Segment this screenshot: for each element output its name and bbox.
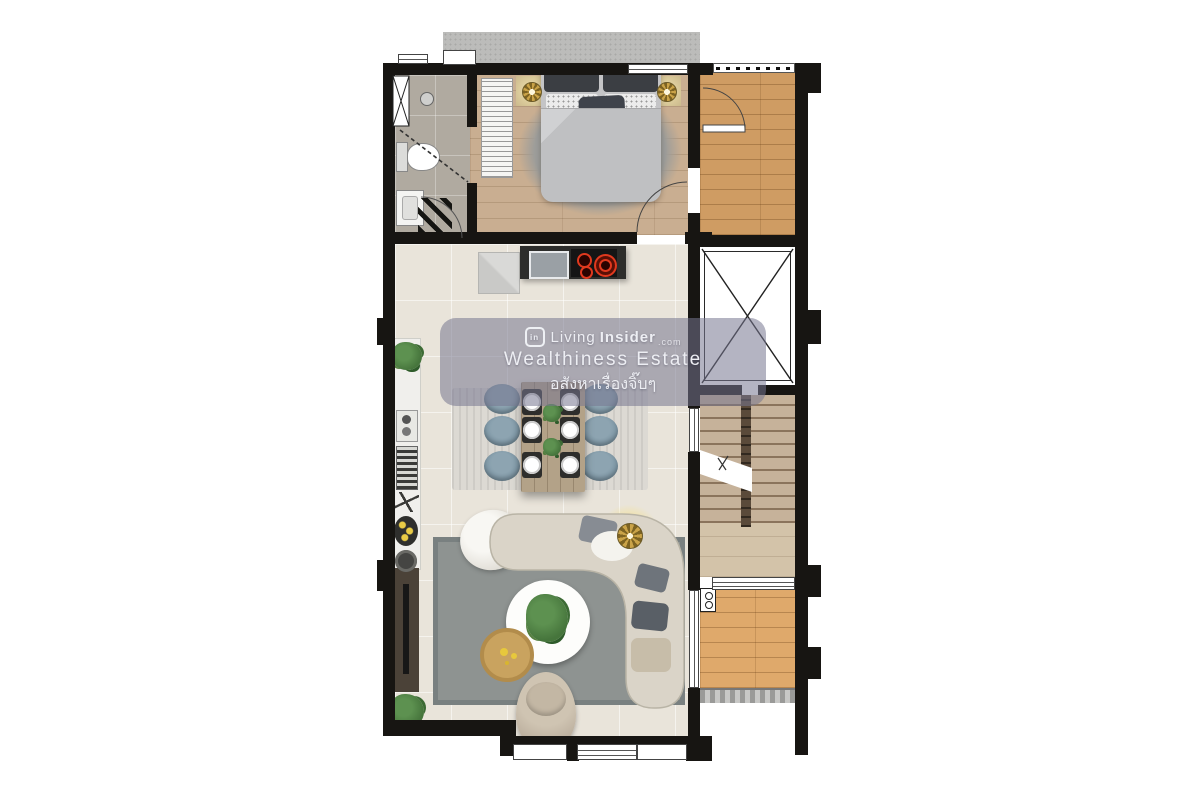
bedside-lamp-right: [657, 82, 677, 102]
table-plant: [543, 404, 561, 422]
watermark-title: Wealthiness Estate: [504, 349, 702, 371]
wall-mid-vertical-3: [688, 558, 700, 590]
bed-duvet: [541, 108, 661, 202]
plate: [523, 456, 541, 474]
coffee-table-plant: [526, 594, 568, 642]
stair-side-window: [689, 408, 699, 452]
window-line: [629, 69, 687, 70]
watermark-subtitle-thai: อสังหาเรื่องจิ๊บๆ: [550, 372, 656, 397]
window-line: [578, 755, 636, 756]
living-deck-window: [689, 590, 699, 688]
stair-landing: [700, 523, 795, 577]
window-bottom-right: [637, 744, 687, 760]
louver-vent: [443, 50, 476, 65]
wall-column-left-2: [377, 560, 395, 591]
plant-console: [392, 342, 422, 370]
burner-large: [594, 254, 617, 277]
plate: [561, 456, 579, 474]
stair-center-rail: [741, 393, 751, 527]
wall-balcony-corner-post: [700, 63, 713, 75]
living-insider-logo-icon: in: [525, 327, 545, 347]
shower-head: [420, 92, 434, 106]
table-plant: [543, 438, 561, 456]
tv-screen: [403, 584, 409, 674]
window-line: [578, 750, 636, 751]
plate: [523, 421, 541, 439]
window-line: [713, 582, 794, 583]
deck-gravel-edge: [700, 688, 795, 703]
watermark-brand-prefix: Living: [551, 329, 596, 346]
plate: [561, 421, 579, 439]
drain-pipe-1: [705, 592, 713, 600]
decor-bowl-2: [402, 427, 411, 436]
wall-column-right-2: [807, 310, 821, 344]
watermark-brand-row: in Living Insider .com: [525, 327, 682, 347]
decor-twig: [393, 492, 419, 512]
window-line: [713, 586, 794, 587]
sink-basin: [402, 196, 418, 220]
decor-tray: [396, 410, 418, 442]
watermark-brand-suffix: Insider: [600, 329, 656, 346]
window-line: [694, 409, 695, 451]
refrigerator: [478, 252, 520, 294]
bedroom-window: [628, 64, 688, 74]
dining-chair: [484, 451, 520, 481]
kitchen-sink: [529, 251, 569, 279]
side-table: [480, 628, 534, 682]
dining-chair: [484, 416, 520, 446]
place-setting: [560, 417, 580, 443]
side-table-fruit: [500, 648, 508, 656]
bed: [541, 63, 661, 201]
wall-bath-divider-upper: [467, 75, 477, 127]
armchair-cushion: [526, 682, 566, 716]
wall-bedroom-balcony-upper: [688, 63, 700, 168]
dining-chair: [582, 416, 618, 446]
wall-mid-vertical-2: [688, 452, 700, 558]
wall-bedroom-balcony-lower: [688, 213, 700, 244]
wall-column-right-3: [807, 565, 821, 597]
decor-bowl-1: [402, 415, 411, 424]
drain-fixture: [700, 588, 716, 612]
kitchen-counter: [520, 246, 626, 279]
window-line: [399, 59, 427, 60]
balcony-floor: [700, 72, 795, 235]
place-setting: [560, 452, 580, 478]
wall-balcony-void: [700, 235, 807, 247]
window-line: [694, 591, 695, 687]
wardrobe: [481, 78, 513, 178]
landing-deck-window: [712, 577, 795, 590]
window-above-bath-left: [398, 54, 428, 64]
wall-bedroom-bottom: [383, 232, 637, 244]
decor-book-stack: [396, 446, 418, 490]
wall-bottom-left: [383, 720, 515, 736]
window-bottom-left: [513, 744, 567, 760]
wall-mid-vertical-4: [688, 688, 700, 736]
decor-flower-tray: [394, 516, 418, 546]
place-setting: [522, 452, 542, 478]
watermark-brand-tld: .com: [658, 337, 682, 347]
toilet-bowl: [407, 143, 440, 171]
decor-plate: [395, 550, 417, 572]
floor-plan: in Living Insider .com Wealthiness Estat…: [0, 0, 1200, 800]
bathroom-door-leaf: [418, 198, 452, 232]
balcony-railing: [713, 63, 795, 73]
dining-chair: [582, 451, 618, 481]
wall-column-right-4: [807, 647, 821, 679]
wall-bottom-right-corner: [686, 736, 712, 761]
watermark: in Living Insider .com Wealthiness Estat…: [440, 318, 766, 406]
drain-pipe-2: [705, 601, 713, 609]
wall-left: [383, 63, 395, 736]
burner-small-bottom: [580, 266, 593, 279]
window-bottom-center: [577, 744, 637, 760]
place-setting: [522, 417, 542, 443]
wall-column-right-1: [807, 63, 821, 93]
tv-console: [393, 568, 419, 692]
bedside-lamp-left: [522, 82, 542, 102]
balcony-railing-balusters: [716, 67, 792, 70]
pendant-lamp: [617, 523, 643, 549]
wall-column-left-1: [377, 318, 395, 345]
